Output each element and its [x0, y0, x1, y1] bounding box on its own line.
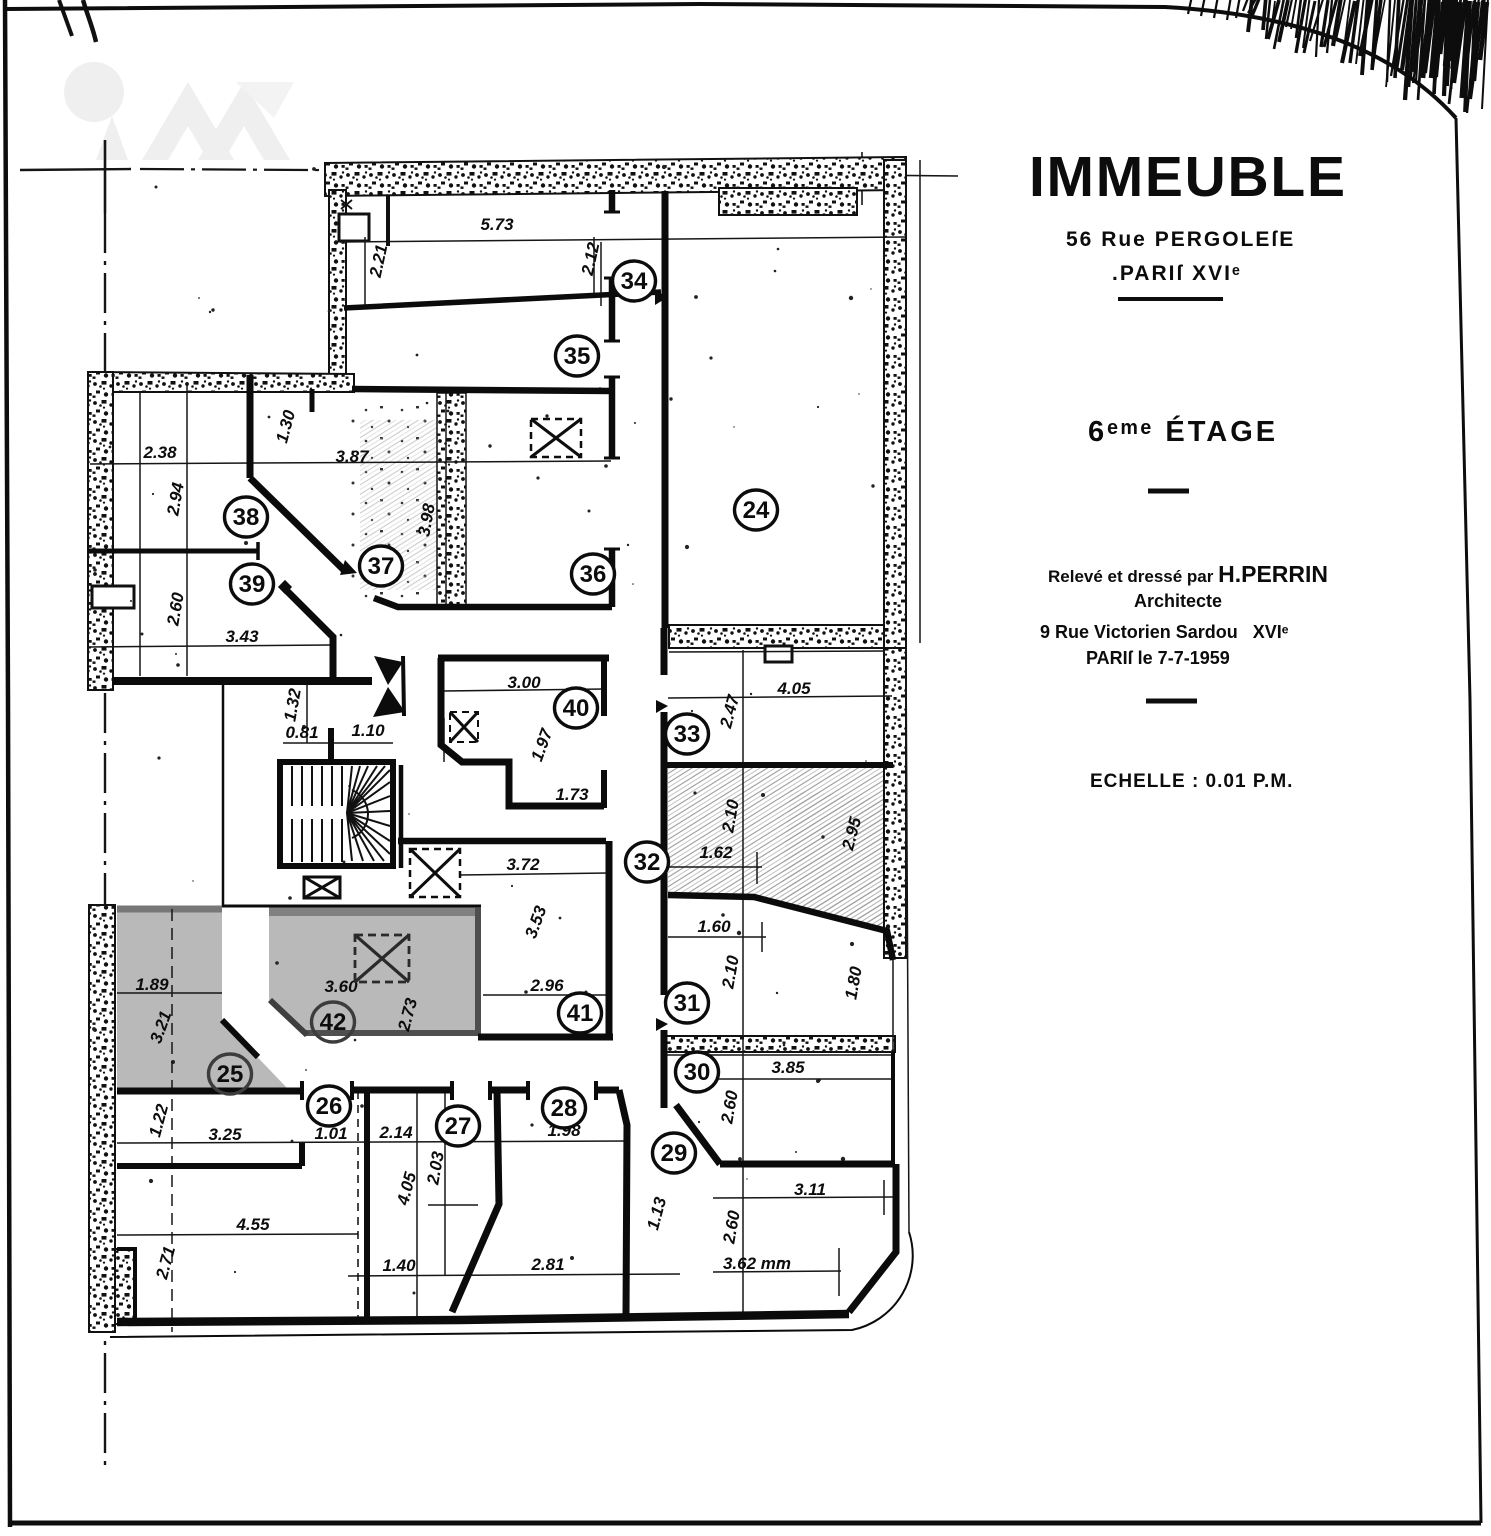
svg-text:40: 40	[563, 695, 590, 722]
svg-text:3.43: 3.43	[225, 627, 259, 646]
svg-text:PARIſ le 7-7-1959: PARIſ le 7-7-1959	[1086, 648, 1230, 668]
svg-text:1.62: 1.62	[699, 843, 733, 862]
svg-text:0.81: 0.81	[285, 723, 318, 742]
svg-text:56 Rue PERGOLEſE: 56 Rue PERGOLEſE	[1066, 228, 1295, 251]
svg-text:2.38: 2.38	[142, 443, 177, 462]
svg-text:6ᵉᵐᵉ ÉTAGE: 6ᵉᵐᵉ ÉTAGE	[1088, 414, 1278, 448]
svg-text:.PARIſ XVIᵉ: .PARIſ XVIᵉ	[1112, 262, 1242, 285]
svg-text:38: 38	[233, 504, 260, 531]
svg-text:3.00: 3.00	[507, 673, 541, 692]
svg-text:2.14: 2.14	[378, 1123, 413, 1142]
svg-text:1.60: 1.60	[697, 917, 731, 936]
svg-text:30: 30	[684, 1059, 711, 1086]
svg-text:39: 39	[239, 571, 266, 598]
svg-text:24: 24	[743, 497, 770, 524]
svg-text:33: 33	[674, 721, 701, 748]
svg-text:1.40: 1.40	[382, 1256, 416, 1275]
svg-text:3.25: 3.25	[208, 1125, 242, 1144]
svg-text:35: 35	[564, 343, 591, 370]
svg-text:28: 28	[551, 1095, 578, 1122]
svg-text:3.62 mm: 3.62 mm	[723, 1254, 791, 1273]
svg-text:37: 37	[368, 553, 395, 580]
svg-text:29: 29	[661, 1140, 688, 1167]
svg-text:3.87: 3.87	[335, 447, 370, 466]
svg-text:25: 25	[217, 1061, 244, 1088]
svg-text:3.60: 3.60	[324, 977, 358, 996]
svg-text:IMMEUBLE: IMMEUBLE	[1029, 145, 1354, 209]
svg-text:36: 36	[580, 561, 607, 588]
svg-text:4.55: 4.55	[235, 1215, 270, 1234]
svg-text:1.10: 1.10	[351, 721, 385, 740]
svg-text:27: 27	[445, 1113, 472, 1140]
svg-text:1.89: 1.89	[135, 975, 169, 994]
svg-text:2.81: 2.81	[530, 1255, 564, 1274]
svg-text:Architecte: Architecte	[1134, 591, 1222, 611]
svg-text:31: 31	[674, 990, 701, 1017]
svg-text:5.73: 5.73	[480, 215, 514, 234]
svg-text:9 Rue Victorien Sardou XVIᵉ: 9 Rue Victorien Sardou XVIᵉ	[1040, 622, 1289, 642]
svg-text:4.05: 4.05	[776, 679, 811, 698]
svg-text:3.85: 3.85	[771, 1058, 805, 1077]
svg-text:ECHELLE : 0.01 P.M.: ECHELLE : 0.01 P.M.	[1090, 771, 1293, 792]
svg-text:3.72: 3.72	[506, 855, 540, 874]
svg-text:34: 34	[621, 268, 648, 295]
svg-text:3.11: 3.11	[794, 1180, 826, 1199]
svg-text:26: 26	[316, 1093, 343, 1120]
svg-text:41: 41	[567, 1000, 594, 1027]
svg-text:1.73: 1.73	[555, 785, 589, 804]
svg-text:42: 42	[320, 1009, 347, 1036]
svg-text:2.96: 2.96	[529, 976, 564, 995]
svg-text:32: 32	[634, 849, 661, 876]
